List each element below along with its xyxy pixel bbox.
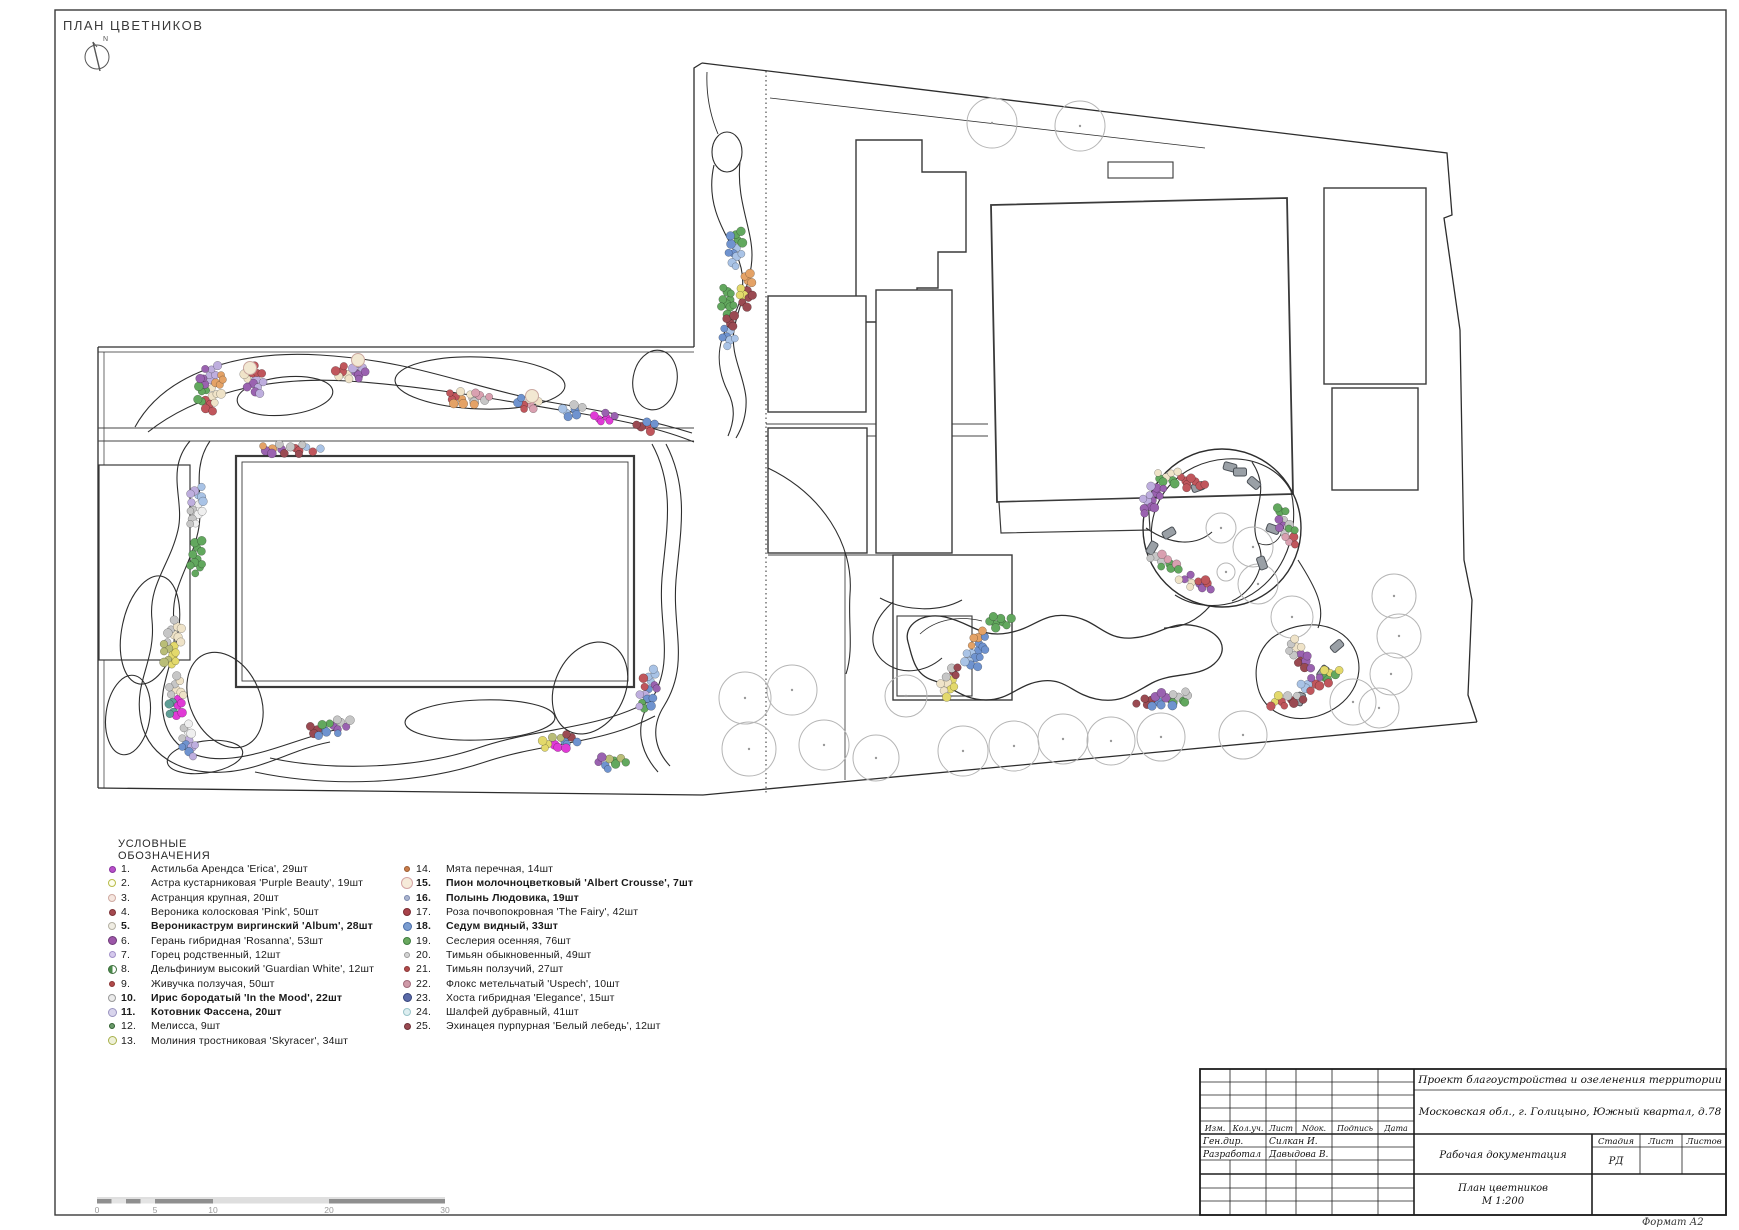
legend-item-label: Роза почвопокровная 'The Fairy', 42шт xyxy=(446,906,638,918)
plant-marker-icon xyxy=(398,952,416,958)
stage-value: РД xyxy=(1608,1156,1625,1167)
legend-item-number: 22. xyxy=(416,978,446,990)
legend-item-label: Пион молочноцветковый 'Albert Crousse', … xyxy=(446,877,693,889)
plant-marker-icon xyxy=(103,1023,121,1029)
plant-marker-icon xyxy=(398,895,416,901)
plant-marker-icon xyxy=(103,1008,121,1017)
legend-item-number: 25. xyxy=(416,1020,446,1032)
legend-item-label: Дельфиниум высокий 'Guardian White', 12ш… xyxy=(151,963,374,975)
plant-marker-icon xyxy=(398,1023,416,1030)
titleblock-texts: Проект благоустройства и озеленения терр… xyxy=(1202,1074,1722,1207)
legend-item-label: Тимьян обыкновенный, 49шт xyxy=(446,949,591,961)
legend-item: 12.Мелисса, 9шт xyxy=(103,1019,374,1033)
legend-item: 3.Астранция крупная, 20шт xyxy=(103,891,374,905)
legend-item: 25.Эхинацея пурпурная 'Белый лебедь', 12… xyxy=(398,1019,693,1033)
legend-item: 17.Роза почвопокровная 'The Fairy', 42шт xyxy=(398,905,693,919)
plant-marker-icon xyxy=(398,966,416,972)
legend-item-label: Мелисса, 9шт xyxy=(151,1020,220,1032)
legend-item-label: Астильба Арендса 'Erica', 29шт xyxy=(151,863,308,875)
legend-item: 14.Мята перечная, 14шт xyxy=(398,862,693,876)
plant-marker-icon xyxy=(103,936,121,945)
plant-marker-icon xyxy=(398,866,416,872)
plant-marker-icon xyxy=(398,1008,416,1016)
legend-item-label: Сеслерия осенняя, 76шт xyxy=(446,935,571,947)
legend-item-number: 17. xyxy=(416,906,446,918)
legend-item-number: 24. xyxy=(416,1006,446,1018)
legend-item-number: 23. xyxy=(416,992,446,1004)
plant-marker-icon xyxy=(398,908,416,916)
legend-item-number: 7. xyxy=(121,949,151,961)
legend-item-number: 8. xyxy=(121,963,151,975)
legend-item-number: 18. xyxy=(416,920,446,932)
svg-text:Nдок.: Nдок. xyxy=(1301,1124,1326,1133)
legend-item-label: Вероникаструм виргинский 'Album', 28шт xyxy=(151,920,373,932)
plant-marker-icon xyxy=(103,951,121,958)
legend-item-label: Горец родственный, 12шт xyxy=(151,949,281,961)
legend-item-number: 6. xyxy=(121,935,151,947)
legend-item-number: 10. xyxy=(121,992,151,1004)
legend-item-label: Астра кустарниковая 'Purple Beauty', 19ш… xyxy=(151,877,363,889)
legend-item: 18.Седум видный, 33шт xyxy=(398,919,693,933)
legend-item-number: 9. xyxy=(121,978,151,990)
svg-text:Ген.дир.: Ген.дир. xyxy=(1202,1137,1243,1147)
project-title: Проект благоустройства и озеленения терр… xyxy=(1417,1074,1722,1086)
plant-marker-icon xyxy=(103,909,121,916)
svg-text:Кол.уч.: Кол.уч. xyxy=(1232,1124,1264,1133)
plant-marker-icon xyxy=(398,877,416,889)
peony-dots xyxy=(244,354,539,403)
legend-item-number: 21. xyxy=(416,963,446,975)
legend-item: 2.Астра кустарниковая 'Purple Beauty', 1… xyxy=(103,876,374,890)
north-arrow-icon: N xyxy=(85,36,109,71)
doc-type: Рабочая документация xyxy=(1438,1150,1566,1161)
legend-item: 7.Горец родственный, 12шт xyxy=(103,948,374,962)
legend-item: 1.Астильба Арендса 'Erica', 29шт xyxy=(103,862,374,876)
legend-item-number: 20. xyxy=(416,949,446,961)
legend-item-label: Астранция крупная, 20шт xyxy=(151,892,279,904)
legend-item-label: Хоста гибридная 'Elegance', 15шт xyxy=(446,992,615,1004)
plant-marker-icon xyxy=(103,922,121,930)
legend-item-number: 2. xyxy=(121,877,151,889)
legend-item: 11.Котовник Фассена, 20шт xyxy=(103,1005,374,1019)
plant-marker-icon xyxy=(398,937,416,945)
svg-text:Изм.: Изм. xyxy=(1204,1124,1226,1133)
legend-item-label: Ирис бородатый 'In the Mood', 22шт xyxy=(151,992,342,1004)
legend-item-number: 12. xyxy=(121,1020,151,1032)
legend-item-number: 11. xyxy=(121,1006,151,1018)
legend-item: 23.Хоста гибридная 'Elegance', 15шт xyxy=(398,991,693,1005)
legend-item: 21.Тимьян ползучий, 27шт xyxy=(398,962,693,976)
legend-item-label: Живучка ползучая, 50шт xyxy=(151,978,275,990)
scale-bar: 05102030 xyxy=(95,1198,450,1215)
project-address: Московская обл., г. Голицыно, Южный квар… xyxy=(1418,1106,1722,1118)
plant-marker-icon xyxy=(103,981,121,987)
legend-column-2: 14.Мята перечная, 14шт15.Пион молочноцве… xyxy=(398,862,693,1034)
svg-text:N: N xyxy=(103,36,108,43)
legend-item-label: Седум видный, 33шт xyxy=(446,920,558,932)
plant-marker-icon xyxy=(398,922,416,931)
legend-item: 4.Вероника колосковая 'Pink', 50шт xyxy=(103,905,374,919)
drawing-sheet: N xyxy=(0,0,1739,1230)
legend-column-1: 1.Астильба Арендса 'Erica', 29шт2.Астра … xyxy=(103,862,374,1048)
legend-item-number: 1. xyxy=(121,863,151,875)
legend-item-number: 16. xyxy=(416,892,446,904)
svg-text:Дата: Дата xyxy=(1383,1124,1408,1133)
plant-marker-icon xyxy=(398,993,416,1002)
legend-item: 5.Вероникаструм виргинский 'Album', 28шт xyxy=(103,919,374,933)
scale-bar-label: 20 xyxy=(324,1205,334,1215)
legend-item-number: 4. xyxy=(121,906,151,918)
format-label: Формат А2 xyxy=(1642,1217,1704,1228)
drawing-name: План цветников xyxy=(1457,1183,1548,1194)
legend-item: 20.Тимьян обыкновенный, 49шт xyxy=(398,948,693,962)
legend-item-label: Мята перечная, 14шт xyxy=(446,863,553,875)
legend-item: 16.Полынь Людовика, 19шт xyxy=(398,891,693,905)
legend-item-number: 3. xyxy=(121,892,151,904)
legend-item-label: Полынь Людовика, 19шт xyxy=(446,892,579,904)
svg-text:Разработал: Разработал xyxy=(1202,1149,1261,1160)
legend-item-label: Котовник Фассена, 20шт xyxy=(151,1006,282,1018)
svg-text:Подпись: Подпись xyxy=(1336,1124,1373,1133)
scale-bar-label: 30 xyxy=(440,1205,450,1215)
legend-item-label: Герань гибридная 'Rosanna', 53шт xyxy=(151,935,323,947)
plant-marker-icon xyxy=(398,980,416,988)
svg-text:Давыдова В.: Давыдова В. xyxy=(1268,1150,1328,1160)
legend-item-label: Эхинацея пурпурная 'Белый лебедь', 12шт xyxy=(446,1020,661,1032)
plant-marker-icon xyxy=(103,994,121,1002)
legend-item: 6.Герань гибридная 'Rosanna', 53шт xyxy=(103,933,374,947)
buildings xyxy=(99,140,1426,700)
building-main-right xyxy=(991,198,1293,502)
legend-item: 19.Сеслерия осенняя, 76шт xyxy=(398,933,693,947)
legend-title: УСЛОВНЫЕ ОБОЗНАЧЕНИЯ xyxy=(118,838,211,862)
legend-item-label: Шалфей дубравный, 41шт xyxy=(446,1006,579,1018)
legend-item-label: Тимьян ползучий, 27шт xyxy=(446,963,563,975)
svg-text:Силкан И.: Силкан И. xyxy=(1269,1137,1318,1147)
plant-marker-icon xyxy=(103,1036,121,1045)
legend-item: 8.Дельфиниум высокий 'Guardian White', 1… xyxy=(103,962,374,976)
page-title: ПЛАН ЦВЕТНИКОВ xyxy=(63,18,203,33)
legend-item: 15.Пион молочноцветковый 'Albert Crousse… xyxy=(398,876,693,890)
plant-marker-icon xyxy=(103,894,121,902)
scale-bar-label: 5 xyxy=(153,1205,158,1215)
legend-item-label: Молиния тростниковая 'Skyracer', 34шт xyxy=(151,1035,348,1047)
legend-item-number: 15. xyxy=(416,877,446,889)
svg-text:Лист: Лист xyxy=(1647,1137,1673,1147)
legend-item-number: 13. xyxy=(121,1035,151,1047)
legend-item-number: 19. xyxy=(416,935,446,947)
scale-bar-label: 10 xyxy=(208,1205,218,1215)
svg-text:Листов: Листов xyxy=(1685,1137,1722,1147)
svg-text:Стадия: Стадия xyxy=(1598,1137,1634,1147)
plant-marker-icon xyxy=(103,879,121,887)
legend-item: 9.Живучка ползучая, 50шт xyxy=(103,976,374,990)
legend-item: 10.Ирис бородатый 'In the Mood', 22шт xyxy=(103,991,374,1005)
svg-text:Лист: Лист xyxy=(1268,1124,1293,1133)
plant-marker-icon xyxy=(103,866,121,873)
legend-item: 24.Шалфей дубравный, 41шт xyxy=(398,1005,693,1019)
plant-marker-icon xyxy=(103,965,121,974)
legend-item-label: Флокс метельчатый 'Uspech', 10шт xyxy=(446,978,620,990)
legend-item: 13.Молиния тростниковая 'Skyracer', 34шт xyxy=(103,1034,374,1048)
legend-item-label: Вероника колосковая 'Pink', 50шт xyxy=(151,906,319,918)
scale-bar-label: 0 xyxy=(95,1205,100,1215)
legend-item-number: 14. xyxy=(416,863,446,875)
legend-item: 22.Флокс метельчатый 'Uspech', 10шт xyxy=(398,976,693,990)
legend-item-number: 5. xyxy=(121,920,151,932)
drawing-scale: М 1:200 xyxy=(1481,1196,1525,1207)
